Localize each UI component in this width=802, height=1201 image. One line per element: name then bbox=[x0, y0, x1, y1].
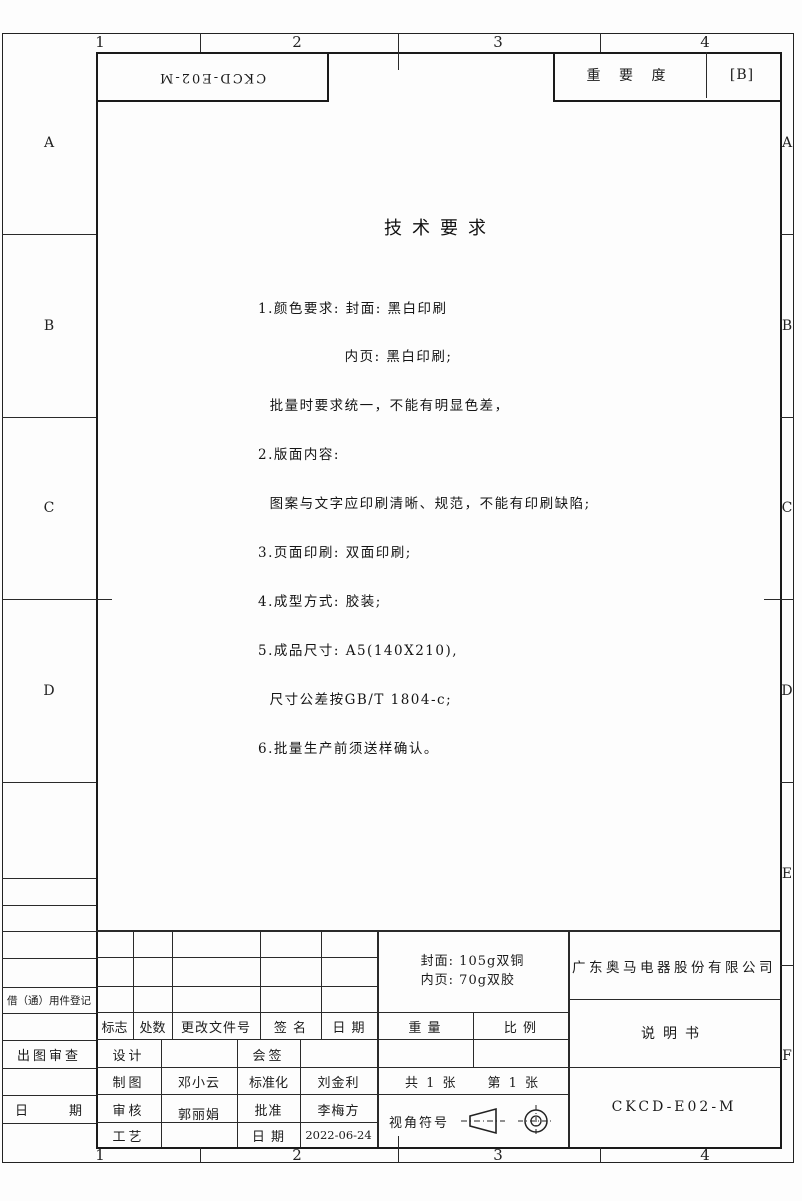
zone-label-right-1: A bbox=[782, 135, 792, 151]
role-design: 设计 bbox=[96, 1040, 161, 1068]
revision-docno-header: 更改文件号 bbox=[172, 1013, 260, 1040]
divider-line bbox=[96, 1039, 568, 1040]
tech-line: 5.成品尺寸: A5(140X210), bbox=[258, 643, 591, 659]
zone-label-top-3: 3 bbox=[493, 33, 503, 51]
role-draft-name: 邓小云 bbox=[161, 1068, 237, 1095]
tech-line: 2.版面内容: bbox=[258, 447, 591, 463]
plot-review-label: 出图审查 bbox=[2, 1040, 96, 1068]
rotated-code-text: CKCD-E02-M bbox=[158, 70, 266, 85]
divider-line bbox=[2, 958, 96, 959]
zone-label-bottom-4: 4 bbox=[700, 1146, 710, 1164]
paper-inner: 内页: 70g双胶 bbox=[421, 972, 525, 991]
tech-line: 1.颜色要求: 封面: 黑白印刷 bbox=[258, 301, 591, 317]
divider-line bbox=[780, 965, 794, 966]
divider-line bbox=[2, 1040, 96, 1041]
projection-cone-icon bbox=[460, 1105, 506, 1137]
divider-line bbox=[96, 1067, 780, 1068]
divider-line bbox=[377, 931, 379, 1147]
paper-spec: 封面: 105g双铜 内页: 70g双胶 bbox=[377, 931, 568, 1012]
company-name: 广东奥马电器股份有限公司 bbox=[568, 931, 780, 1000]
zone-label-bottom-2: 2 bbox=[292, 1146, 302, 1164]
importance-value: [B] bbox=[706, 52, 778, 98]
paper-cover: 封面: 105g双铜 bbox=[421, 953, 525, 972]
drawing-number: CKCD-E02-M bbox=[568, 1067, 780, 1147]
role-check: 审核 bbox=[96, 1095, 161, 1123]
revision-date-header: 日 期 bbox=[321, 1013, 377, 1040]
tech-line: 内页: 黑白印刷; bbox=[258, 349, 591, 365]
zone-label-bottom-1: 1 bbox=[95, 1146, 105, 1164]
role-date: 日 期 bbox=[237, 1123, 300, 1147]
sheet-count: 共 1 张 第 1 张 bbox=[377, 1068, 568, 1094]
scale-label: 比 例 bbox=[473, 1013, 568, 1040]
borrow-register-label: 借（通）用件登记 bbox=[2, 987, 96, 1013]
role-date-value: 2022-06-24 bbox=[300, 1123, 377, 1147]
divider-line bbox=[2, 1123, 96, 1124]
zone-label-right-4: D bbox=[781, 683, 792, 699]
divider-line bbox=[96, 1012, 568, 1013]
divider-line bbox=[172, 931, 173, 1040]
zone-label-right-6: F bbox=[782, 1048, 792, 1064]
tech-requirements-list: 1.颜色要求: 封面: 黑白印刷 内页: 黑白印刷; 批量时要求统一，不能有明显… bbox=[258, 268, 591, 790]
zone-label-left-2: B bbox=[44, 318, 54, 334]
tech-line: 批量时要求统一，不能有明显色差， bbox=[258, 398, 591, 414]
divider-line bbox=[2, 1095, 96, 1096]
view-symbol-row: 视角符号 bbox=[377, 1095, 568, 1147]
role-approve-name: 李梅方 bbox=[300, 1095, 377, 1123]
divider-line bbox=[780, 782, 794, 783]
tech-requirements-title: 技术要求 bbox=[300, 214, 580, 240]
divider-line bbox=[764, 599, 794, 600]
tech-line: 3.页面印刷: 双面印刷; bbox=[258, 545, 591, 561]
tech-line: 6.批量生产前须送样确认。 bbox=[258, 741, 591, 757]
divider-line bbox=[473, 1012, 474, 1068]
zone-label-left-4: D bbox=[43, 683, 54, 699]
divider-line bbox=[2, 782, 96, 783]
divider-line bbox=[2, 905, 96, 906]
divider-line bbox=[2, 417, 96, 418]
document-type: 说明书 bbox=[568, 999, 780, 1067]
divider-line bbox=[96, 930, 780, 932]
weight-label: 重 量 bbox=[377, 1013, 473, 1040]
margin-date-char: 日 bbox=[15, 1100, 29, 1119]
margin-date-char: 期 bbox=[69, 1100, 83, 1119]
divider-line bbox=[2, 1068, 96, 1069]
revision-count-header: 处数 bbox=[133, 1013, 172, 1040]
divider-line bbox=[568, 999, 780, 1000]
zone-label-left-3: C bbox=[44, 500, 55, 516]
zone-label-top-2: 2 bbox=[292, 33, 302, 51]
divider-line bbox=[96, 1094, 568, 1095]
tech-line: 尺寸公差按GB/T 1804-c; bbox=[258, 692, 591, 708]
divider-line bbox=[780, 234, 794, 235]
role-process: 工艺 bbox=[96, 1123, 161, 1147]
divider-line bbox=[260, 931, 261, 1040]
sheets-total: 共 1 张 bbox=[405, 1072, 458, 1091]
revision-mark-header: 标志 bbox=[96, 1013, 133, 1040]
divider-line bbox=[780, 417, 794, 418]
divider-line bbox=[96, 986, 377, 987]
divider-line bbox=[2, 987, 96, 988]
role-standard: 标准化 bbox=[237, 1068, 300, 1095]
importance-label: 重 要 度 bbox=[553, 52, 706, 98]
divider-line bbox=[2, 931, 96, 932]
projection-target-icon bbox=[517, 1103, 555, 1139]
divider-line bbox=[398, 1136, 399, 1163]
tech-line: 4.成型方式: 胶装; bbox=[258, 594, 591, 610]
divider-line bbox=[161, 1040, 162, 1147]
role-countersign: 会签 bbox=[237, 1040, 300, 1068]
tech-line: 图案与文字应印刷清晰、规范，不能有印刷缺陷; bbox=[258, 496, 591, 512]
divider-line bbox=[237, 1040, 238, 1147]
divider-line bbox=[96, 957, 377, 958]
sheet-number: 第 1 张 bbox=[488, 1072, 541, 1091]
divider-line bbox=[2, 234, 96, 235]
zone-label-right-5: E bbox=[782, 866, 792, 882]
view-symbol-label: 视角符号 bbox=[389, 1112, 449, 1131]
zone-label-top-1: 1 bbox=[95, 33, 105, 51]
divider-line bbox=[321, 931, 322, 1040]
zone-label-right-3: C bbox=[782, 500, 793, 516]
divider-line bbox=[300, 1040, 301, 1147]
zone-label-left-1: A bbox=[44, 135, 54, 151]
divider-line bbox=[2, 599, 112, 600]
divider-line bbox=[600, 33, 601, 52]
margin-date-label: 日 期 bbox=[2, 1095, 96, 1123]
revision-sign-header: 签 名 bbox=[260, 1013, 321, 1040]
divider-line bbox=[200, 1147, 201, 1163]
role-draft: 制图 bbox=[96, 1068, 161, 1095]
divider-line bbox=[600, 1147, 601, 1163]
drawing-sheet: CKCD-E02-M 重 要 度 [B] 技术要求 1.颜色要求: 封面: 黑白… bbox=[0, 0, 802, 1201]
role-approve: 批准 bbox=[237, 1095, 300, 1123]
divider-line bbox=[200, 33, 201, 52]
divider-line bbox=[398, 43, 399, 70]
divider-line bbox=[2, 1013, 96, 1014]
role-standard-name: 刘金利 bbox=[300, 1068, 377, 1095]
zone-label-top-4: 4 bbox=[700, 33, 710, 51]
zone-label-right-2: B bbox=[782, 318, 792, 334]
zone-label-bottom-3: 3 bbox=[493, 1146, 503, 1164]
divider-line bbox=[133, 931, 134, 1040]
divider-line bbox=[2, 878, 96, 879]
divider-line bbox=[568, 931, 570, 1147]
rotated-code-box: CKCD-E02-M bbox=[96, 52, 329, 102]
